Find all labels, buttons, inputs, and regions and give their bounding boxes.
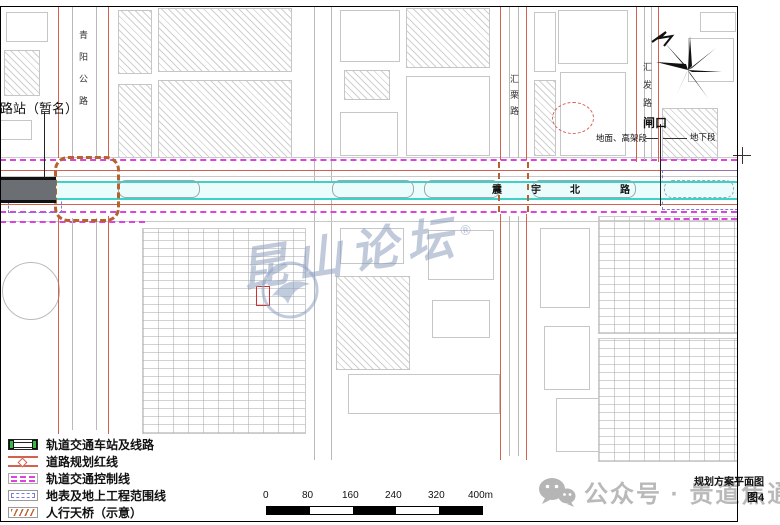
building-block bbox=[534, 12, 556, 72]
roundabout-circle bbox=[552, 102, 594, 134]
legend-label: 道路规划红线 bbox=[46, 453, 118, 470]
redline-symbol-icon bbox=[8, 456, 38, 467]
rail-station-box bbox=[0, 177, 56, 203]
roundabout-circle bbox=[2, 262, 60, 320]
gate-boundary-line bbox=[660, 124, 661, 206]
legend-item-range: 地表及地上工程范围线 bbox=[8, 487, 166, 504]
legend-item-control: 轨道交通控制线 bbox=[8, 470, 166, 487]
scale-tick: 0 bbox=[263, 490, 269, 501]
scale-tick: 160 bbox=[342, 490, 359, 501]
road-redline bbox=[500, 6, 501, 160]
road-name-left-highway: 青阳公路 bbox=[77, 30, 90, 118]
building-block bbox=[432, 300, 490, 338]
building-block bbox=[406, 8, 490, 68]
road-redline bbox=[58, 6, 59, 158]
intersection-flare bbox=[527, 162, 529, 212]
road-name-middle: 汇栗路 bbox=[508, 74, 521, 122]
road-edge bbox=[518, 216, 519, 456]
rail-control-line bbox=[655, 218, 737, 220]
station-leader-line bbox=[44, 112, 45, 178]
legend-label: 人行天桥（示意） bbox=[46, 504, 142, 521]
legend-label: 轨道交通车站及线路 bbox=[46, 436, 154, 453]
gate-right-section-label: 地下段 bbox=[690, 131, 716, 143]
crosshair-icon bbox=[742, 147, 743, 164]
building-block bbox=[118, 10, 152, 74]
drawing-title: 规划方案平面图 bbox=[694, 473, 764, 488]
building-block bbox=[556, 398, 602, 452]
building-block bbox=[340, 228, 404, 264]
scale-tick: 400m bbox=[468, 490, 493, 501]
housing-grid bbox=[598, 216, 738, 334]
rail-viaduct-segment bbox=[424, 180, 500, 198]
legend: 轨道交通车站及线路 道路规划红线 轨道交通控制线 地表及地上工程范围线 人行天桥… bbox=[6, 434, 170, 523]
main-road-name-char: 宇 bbox=[531, 181, 541, 196]
road-edge bbox=[509, 216, 510, 456]
housing-grid bbox=[598, 338, 738, 462]
scale-bar: 0 80 160 240 320 400m bbox=[258, 490, 503, 520]
building-block bbox=[4, 50, 40, 96]
bridge-symbol-icon bbox=[8, 507, 38, 518]
building-block bbox=[158, 80, 292, 158]
main-road-name-char: 北 bbox=[570, 181, 580, 196]
building-block bbox=[544, 326, 590, 390]
minor-road-line bbox=[331, 6, 332, 460]
north-compass-icon bbox=[646, 24, 730, 108]
legend-item-redline: 道路规划红线 bbox=[8, 453, 166, 470]
rail-symbol-icon bbox=[8, 439, 38, 450]
road-name-right: 汇发路 bbox=[641, 62, 654, 116]
figure-number: 图4 bbox=[747, 489, 764, 505]
building-block bbox=[0, 120, 32, 140]
legend-label: 轨道交通控制线 bbox=[46, 470, 130, 487]
legend-item-rail: 轨道交通车站及线路 bbox=[8, 436, 166, 453]
building-block bbox=[336, 276, 410, 370]
rail-viaduct-segment bbox=[118, 180, 200, 198]
legend-label: 地表及地上工程范围线 bbox=[46, 487, 166, 504]
road-edge bbox=[96, 218, 97, 430]
road-redline bbox=[108, 6, 109, 158]
station-label: 路站（暂名） bbox=[0, 98, 78, 117]
building-block bbox=[540, 228, 590, 308]
building-block bbox=[348, 374, 500, 414]
legend-item-bridge: 人行天桥（示意） bbox=[8, 504, 166, 521]
road-edge bbox=[72, 6, 73, 156]
building-block bbox=[558, 10, 628, 64]
gate-callout-line bbox=[663, 138, 687, 139]
building-block bbox=[6, 12, 48, 42]
scale-strip bbox=[266, 506, 483, 515]
rail-viaduct-segment bbox=[332, 180, 414, 198]
rail-underground-segment bbox=[664, 180, 734, 198]
minor-road-line bbox=[314, 6, 315, 460]
road-redline bbox=[526, 214, 527, 460]
scale-tick: 320 bbox=[428, 490, 445, 501]
building-block bbox=[118, 84, 152, 158]
main-road-name-char: 震 bbox=[492, 181, 502, 196]
road-redline bbox=[526, 6, 527, 160]
road-redline bbox=[58, 216, 59, 434]
road-redline bbox=[108, 216, 109, 434]
building-block bbox=[340, 112, 398, 156]
road-redline bbox=[500, 214, 501, 460]
building-block bbox=[428, 230, 494, 280]
scale-ticks: 0 80 160 240 320 400m bbox=[258, 490, 503, 504]
gate-label: 闸口 bbox=[643, 114, 667, 131]
forum-logo-icon bbox=[258, 258, 322, 322]
road-edge bbox=[96, 6, 97, 156]
building-block bbox=[158, 8, 292, 72]
scale-tick: 240 bbox=[385, 490, 402, 501]
building-block bbox=[406, 76, 490, 156]
gate-callout-line bbox=[646, 138, 658, 139]
range-symbol-icon bbox=[8, 490, 38, 501]
gate-left-section-label: 地面、高架段 bbox=[596, 132, 647, 144]
control-line-symbol-icon bbox=[8, 473, 38, 484]
wechat-icon bbox=[538, 476, 576, 508]
road-edge bbox=[72, 218, 73, 430]
main-road-name-char: 路 bbox=[620, 181, 630, 196]
building-block bbox=[344, 70, 390, 100]
intersection-flare bbox=[54, 156, 120, 222]
scale-tick: 80 bbox=[302, 490, 313, 501]
building-block bbox=[340, 10, 400, 62]
